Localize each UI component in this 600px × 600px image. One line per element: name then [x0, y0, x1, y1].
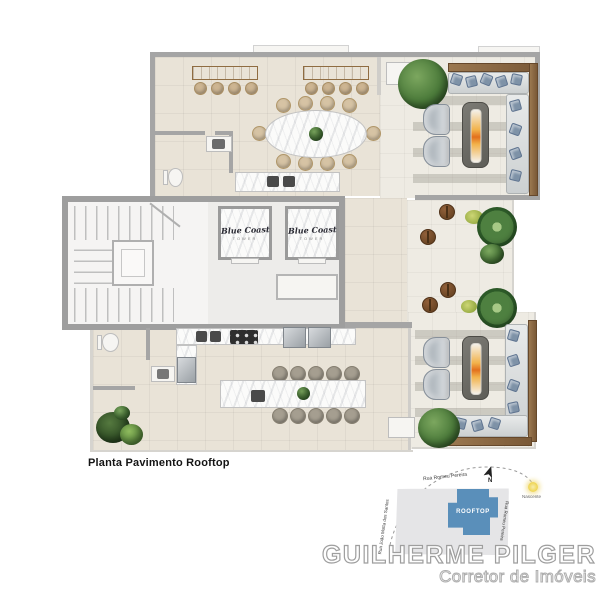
bar-table-2 — [303, 66, 369, 80]
island-stool — [290, 408, 306, 424]
bar-stool — [322, 82, 335, 95]
lounge1-plant — [398, 59, 448, 109]
lounge2-sofa-frame-right — [528, 320, 537, 442]
plan-caption: Planta Pavimento Rooftop — [88, 457, 230, 469]
bar-stool — [194, 82, 207, 95]
bar-stool — [211, 82, 224, 95]
bar-stool — [228, 82, 241, 95]
terrace-side-table — [422, 297, 438, 313]
dining-chair — [298, 96, 313, 111]
kitchen-grill-left — [283, 327, 306, 348]
edge-lounge2-bottom — [412, 447, 536, 449]
dining-chair — [298, 156, 313, 171]
terrace-side-table — [440, 282, 456, 298]
brand-block: GUILHERME PILGER Corretor de Imóveis — [322, 542, 596, 586]
fire-flame — [470, 343, 481, 396]
island-stool — [308, 408, 324, 424]
elevator-hall-bench — [276, 274, 338, 300]
brand-name: GUILHERME PILGER — [322, 542, 596, 568]
lounge1-armchair-1 — [423, 104, 450, 135]
dining-chair — [342, 154, 357, 169]
elevator-logo-sub-1: TOWER — [233, 236, 258, 241]
wc1-vanity-basin — [212, 139, 225, 149]
island-decor-plant — [297, 387, 310, 400]
north-label: N — [488, 478, 492, 484]
dining-chair — [366, 126, 381, 141]
bar-table-1 — [192, 66, 258, 80]
elevator-door-2 — [298, 258, 326, 264]
kitchen-cabinet-basin — [157, 369, 169, 379]
lounge2-armchair-1 — [423, 337, 450, 368]
terrace-bush-1 — [480, 244, 504, 264]
terrace-bush-yellow-2 — [461, 300, 477, 313]
lounge1-fire-table — [462, 102, 489, 168]
island-stool — [326, 408, 342, 424]
corner-plant-light — [120, 424, 143, 445]
lounge1-sofa-frame-right — [529, 63, 538, 196]
wall-left-dining — [150, 52, 155, 196]
elevator-logo-sub-2: TOWER — [300, 236, 325, 241]
sun-label: Nascente — [522, 494, 541, 499]
dining-centerpiece-plant — [309, 127, 323, 141]
island-sink — [251, 390, 265, 402]
kitchen-sink-left — [196, 331, 207, 342]
wc2-wall-bottom — [93, 386, 135, 390]
sun-icon — [528, 482, 538, 492]
wall-divider-dining-deck — [377, 57, 381, 95]
floorplan-page: Blue Coast TOWER Blue Coast TOWER — [0, 0, 600, 600]
corner-plant-small — [114, 406, 130, 420]
wc2-wall-right — [146, 328, 150, 360]
lounge2-fire-table — [462, 336, 489, 400]
wall-top — [150, 52, 540, 57]
lounge1-sofa-frame-top — [448, 63, 538, 72]
kitchen-stove — [230, 330, 258, 344]
dining-chair — [276, 154, 291, 169]
edge-kitchen-left — [90, 328, 93, 452]
dining-chair — [320, 96, 335, 111]
lounge2-sofa-frame-bottom — [448, 437, 532, 446]
elevator-cab-2: Blue Coast TOWER — [285, 206, 339, 260]
elevator-door-1 — [231, 258, 259, 264]
dining-chair — [320, 156, 335, 171]
fire-flame — [470, 109, 481, 163]
elevator-logo-1: Blue Coast — [221, 224, 270, 236]
kitchen-oven — [177, 357, 196, 383]
edge-plan-bottom — [93, 450, 413, 452]
elevator-cab-1: Blue Coast TOWER — [218, 206, 272, 260]
lounge2-tree — [418, 408, 460, 448]
bar-stool — [356, 82, 369, 95]
kitchen-sink-right — [210, 331, 221, 342]
terrace-side-table — [420, 229, 436, 245]
kitchen-island — [220, 380, 366, 408]
wc1-wall-top — [155, 131, 205, 135]
bar-stool — [305, 82, 318, 95]
bar-stool — [245, 82, 258, 95]
lounge2-planter — [388, 417, 415, 438]
lounge1-armchair-2 — [423, 136, 450, 167]
dining-chair — [276, 98, 291, 113]
dining-counter-sink-left — [267, 176, 279, 187]
terrace-palm-2 — [477, 288, 517, 328]
floor-corridor — [345, 198, 407, 324]
island-stool — [344, 408, 360, 424]
lounge2-armchair-2 — [423, 369, 450, 400]
dining-counter-sink-right — [283, 176, 295, 187]
core-white-overlay — [68, 202, 208, 324]
kitchen-grill-right — [308, 327, 331, 348]
sofa-pillow — [507, 401, 520, 414]
elevator-logo-2: Blue Coast — [288, 224, 337, 236]
sofa-pillow — [510, 73, 523, 86]
dining-chair — [342, 98, 357, 113]
sitemap-building-label: ROOFTOP — [456, 509, 490, 515]
island-stool — [272, 408, 288, 424]
terrace-palm-1 — [477, 207, 517, 247]
terrace-side-table — [439, 204, 455, 220]
brand-subtitle: Corretor de Imóveis — [322, 568, 596, 586]
bar-stool — [339, 82, 352, 95]
wall-bottom-lounge1 — [415, 195, 540, 200]
